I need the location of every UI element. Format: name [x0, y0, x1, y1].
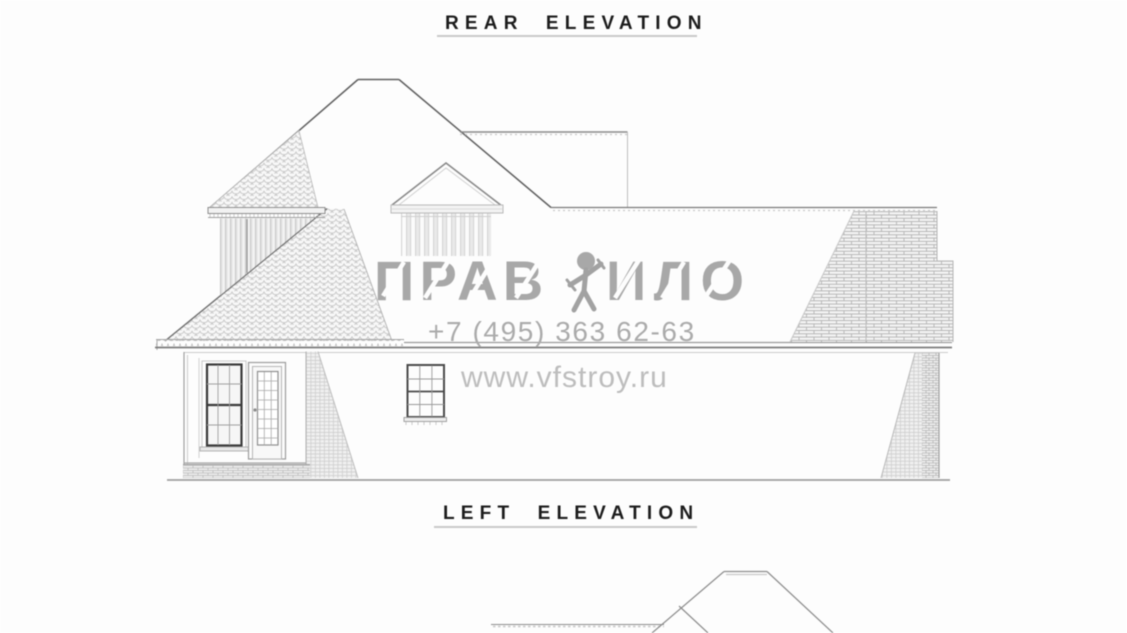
svg-text:ПРАВ: ПРАВ	[374, 249, 548, 312]
svg-text:www.vfstroy.ru: www.vfstroy.ru	[460, 361, 668, 394]
svg-text:+7 (495) 363 62-63: +7 (495) 363 62-63	[428, 316, 696, 347]
